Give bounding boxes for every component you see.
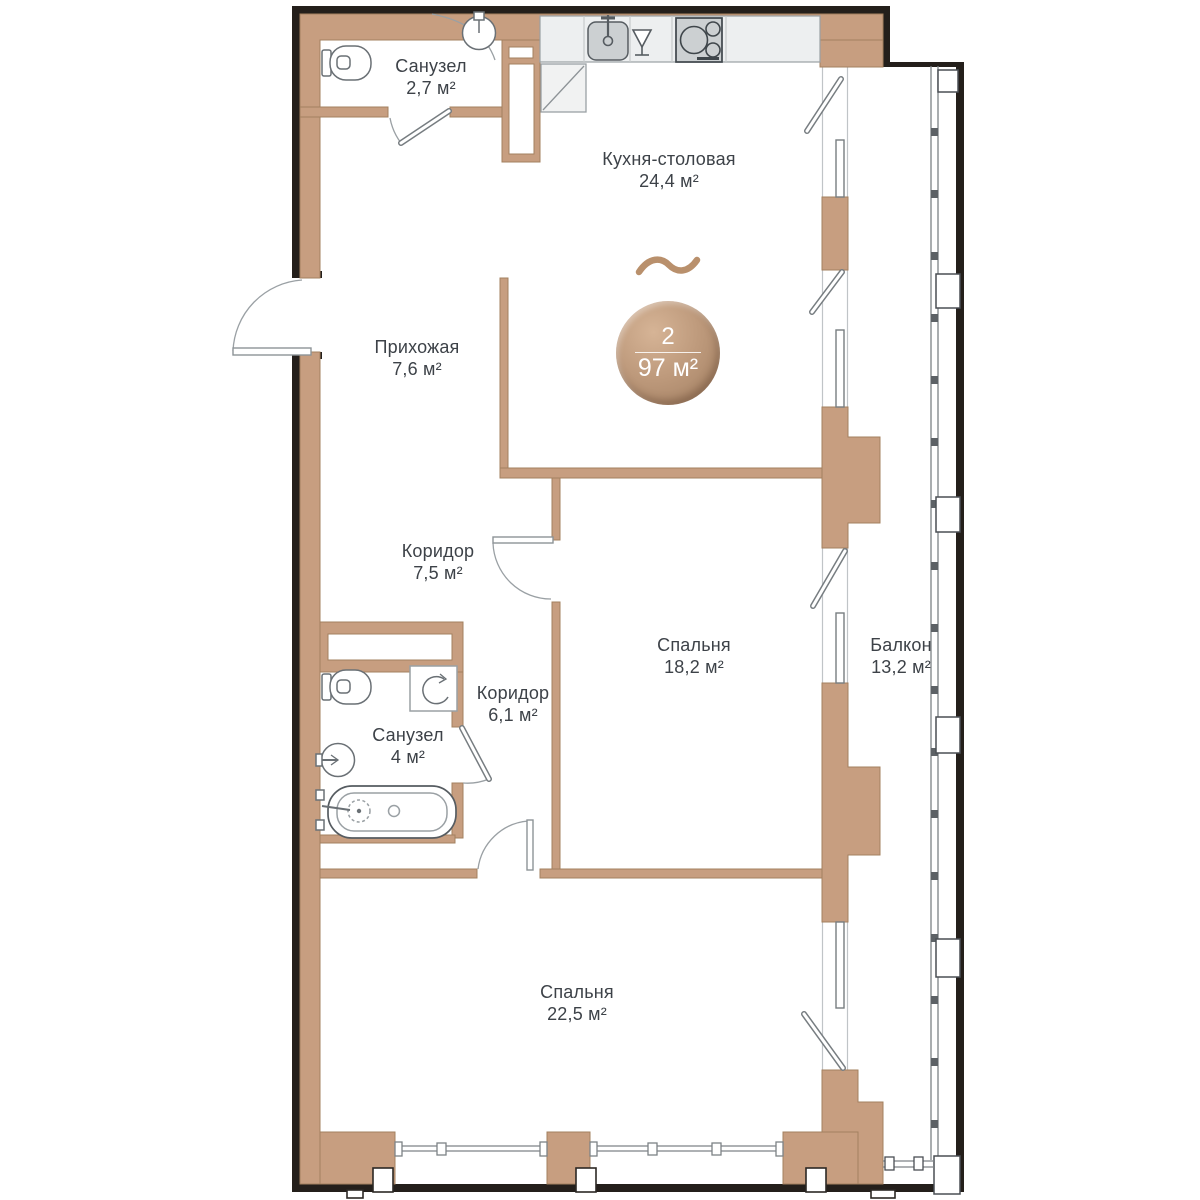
room-area: 24,4 м² bbox=[602, 170, 735, 192]
bathroom-main-door bbox=[462, 728, 489, 783]
pillar-2 bbox=[822, 407, 880, 548]
room-name: Санузел bbox=[395, 55, 467, 77]
room-area: 18,2 м² bbox=[657, 656, 731, 678]
stove-icon bbox=[676, 18, 722, 62]
room-label-balcony: Балкон 13,2 м² bbox=[870, 634, 932, 678]
room-label-bathroom-top: Санузел 2,7 м² bbox=[395, 55, 467, 99]
room-label-kitchen: Кухня-столовая 24,4 м² bbox=[602, 148, 735, 192]
bedroom-1-door bbox=[493, 537, 553, 599]
room-name: Кухня-столовая bbox=[602, 148, 735, 170]
area-badge: 2 97 м² bbox=[616, 301, 720, 405]
room-name: Балкон bbox=[870, 634, 932, 656]
room-area: 6,1 м² bbox=[477, 704, 550, 726]
room-area: 13,2 м² bbox=[870, 656, 932, 678]
room-area: 7,5 м² bbox=[402, 562, 475, 584]
toilet-icon bbox=[322, 670, 371, 704]
room-name: Коридор bbox=[402, 540, 475, 562]
badge-divider bbox=[635, 352, 701, 353]
bathtub-icon bbox=[316, 786, 456, 838]
facade-posts bbox=[347, 1168, 895, 1198]
floor-plan: Санузел 2,7 м² Кухня-столовая 24,4 м² Пр… bbox=[0, 0, 1200, 1200]
room-name: Коридор bbox=[477, 682, 550, 704]
balcony-glazing bbox=[883, 66, 960, 1194]
bedroom-2-door bbox=[478, 820, 533, 870]
kitchen-fixtures bbox=[540, 15, 820, 112]
pillar-1 bbox=[822, 197, 848, 270]
room-label-bathroom-main: Санузел 4 м² bbox=[372, 724, 444, 768]
room-name: Спальня bbox=[540, 981, 614, 1003]
entrance-door bbox=[233, 280, 311, 355]
bathroom-top-door bbox=[390, 111, 449, 143]
rooms-count: 2 bbox=[661, 324, 674, 349]
room-name: Спальня bbox=[657, 634, 731, 656]
wave-icon bbox=[634, 252, 702, 282]
shower-icon bbox=[410, 666, 457, 711]
room-area: 4 м² bbox=[372, 746, 444, 768]
room-name: Санузел bbox=[372, 724, 444, 746]
room-name: Прихожая bbox=[374, 336, 459, 358]
room-area: 2,7 м² bbox=[395, 77, 467, 99]
room-label-hallway: Прихожая 7,6 м² bbox=[374, 336, 459, 380]
total-area: 97 м² bbox=[638, 355, 698, 382]
kitchen-sink-icon bbox=[588, 15, 628, 60]
pillar-3 bbox=[822, 683, 880, 922]
wall-top-right-block bbox=[820, 40, 883, 67]
wall-left-lower bbox=[300, 352, 320, 1184]
room-label-corridor-main: Коридор 7,5 м² bbox=[402, 540, 475, 584]
toilet-icon bbox=[322, 46, 371, 80]
room-label-bedroom-2: Спальня 22,5 м² bbox=[540, 981, 614, 1025]
washbasin-icon bbox=[316, 744, 355, 777]
room-area: 22,5 м² bbox=[540, 1003, 614, 1025]
room-area: 7,6 м² bbox=[374, 358, 459, 380]
room-label-bedroom-1: Спальня 18,2 м² bbox=[657, 634, 731, 678]
room-label-corridor-2: Коридор 6,1 м² bbox=[477, 682, 550, 726]
fridge-icon bbox=[541, 64, 586, 112]
